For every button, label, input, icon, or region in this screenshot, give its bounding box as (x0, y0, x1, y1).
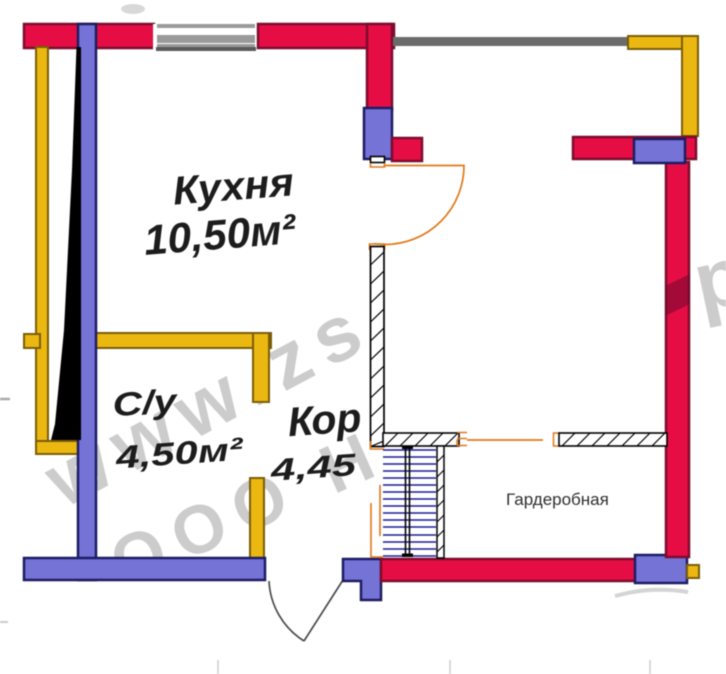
svg-text:С/у: С/у (111, 382, 179, 424)
svg-text:Кор: Кор (286, 394, 363, 445)
svg-text:4,50м²: 4,50м² (113, 431, 245, 476)
svg-text:р: р (685, 227, 726, 330)
svg-text:Гардеробная: Гардеробная (506, 490, 609, 509)
svg-text:10,50м²: 10,50м² (142, 205, 298, 264)
svg-text:4,45: 4,45 (268, 447, 358, 488)
